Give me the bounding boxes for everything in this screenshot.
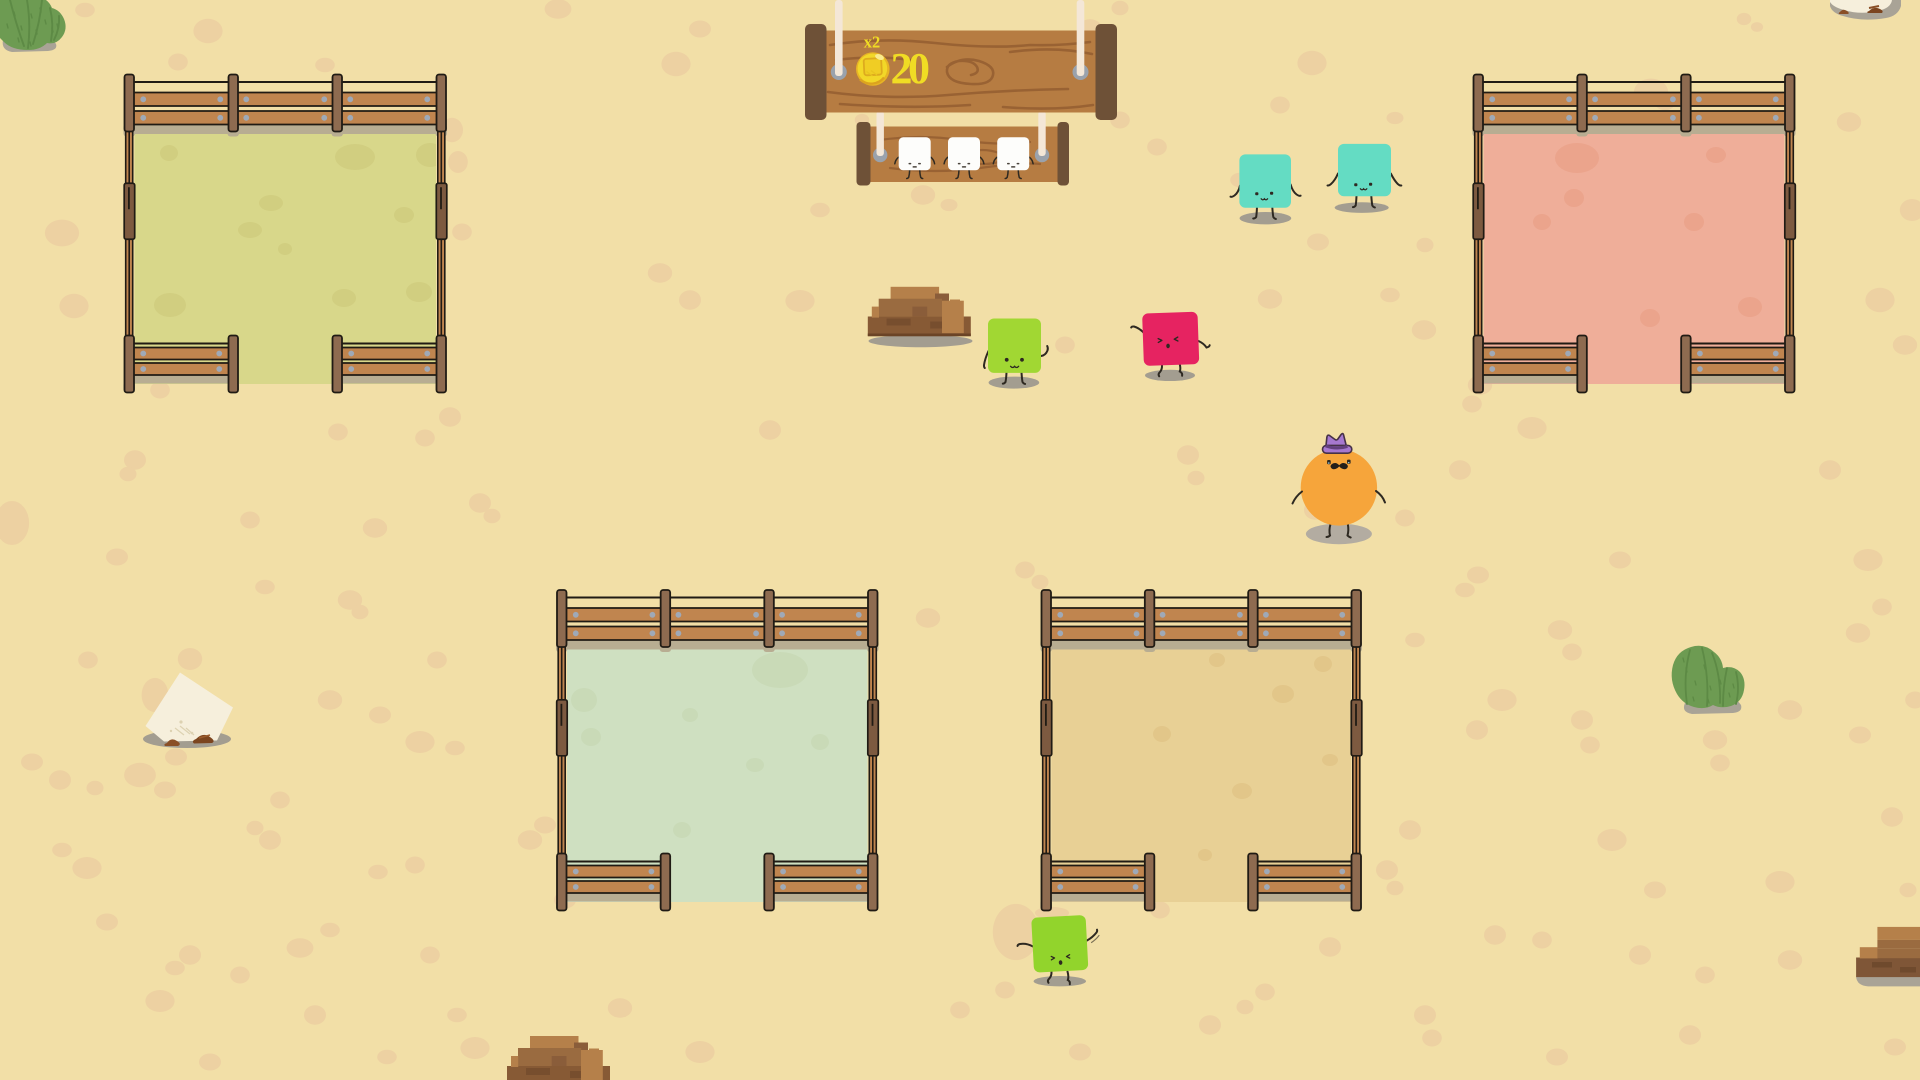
svg-text:x2: x2 bbox=[864, 33, 881, 52]
svg-text:20: 20 bbox=[891, 44, 931, 93]
